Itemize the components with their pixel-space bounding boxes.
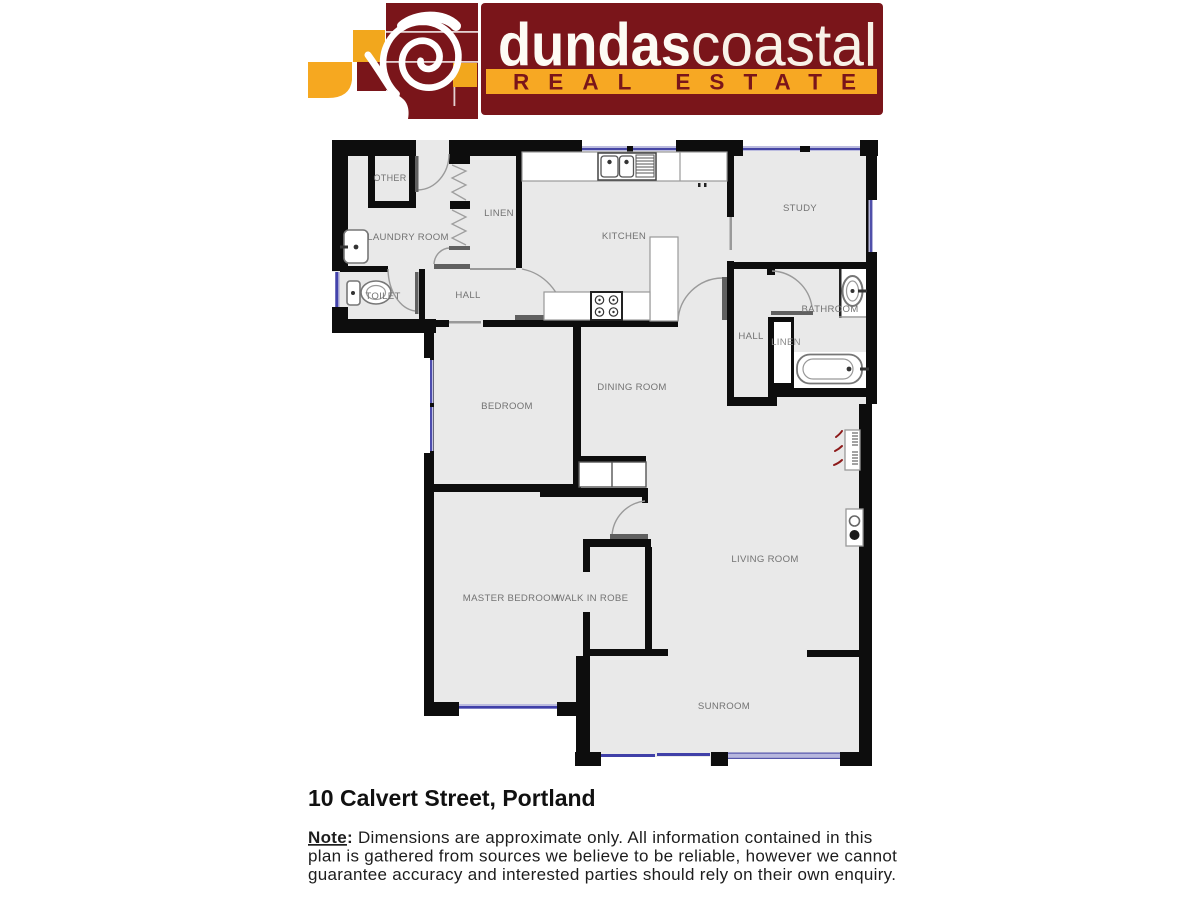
svg-text:dundascoastal: dundascoastal (498, 12, 877, 79)
svg-text:10 Calvert Street, Portland: 10 Calvert Street, Portland (308, 785, 596, 811)
svg-text:SUNROOM: SUNROOM (698, 701, 750, 712)
svg-text:plan is gathered from sources: plan is gathered from sources we believe… (308, 847, 897, 866)
svg-text:TOILET: TOILET (365, 291, 400, 302)
svg-text:LIVING ROOM: LIVING ROOM (731, 554, 798, 565)
svg-text:LINEN: LINEN (484, 208, 514, 219)
svg-text:Note: Dimensions are approxima: Note: Dimensions are approximate only. A… (308, 828, 873, 847)
svg-text:guarantee accuracy and intere: guarantee accuracy and interested partie… (308, 865, 896, 884)
svg-text:DINING ROOM: DINING ROOM (597, 382, 666, 393)
svg-text:WALK IN ROBE: WALK IN ROBE (556, 593, 629, 604)
svg-text:BATHROOM: BATHROOM (801, 304, 858, 315)
svg-text:HALL: HALL (738, 331, 764, 342)
svg-text:BEDROOM: BEDROOM (481, 401, 533, 412)
svg-text:MASTER BEDROOM: MASTER BEDROOM (463, 593, 559, 604)
svg-text:HALL: HALL (455, 290, 481, 301)
svg-text:STUDY: STUDY (783, 203, 817, 214)
svg-text:LINEN: LINEN (771, 337, 801, 348)
svg-text:LAUNDRY ROOM: LAUNDRY ROOM (367, 232, 449, 243)
svg-text:KITCHEN: KITCHEN (602, 231, 646, 242)
svg-text:OTHER: OTHER (374, 173, 407, 183)
